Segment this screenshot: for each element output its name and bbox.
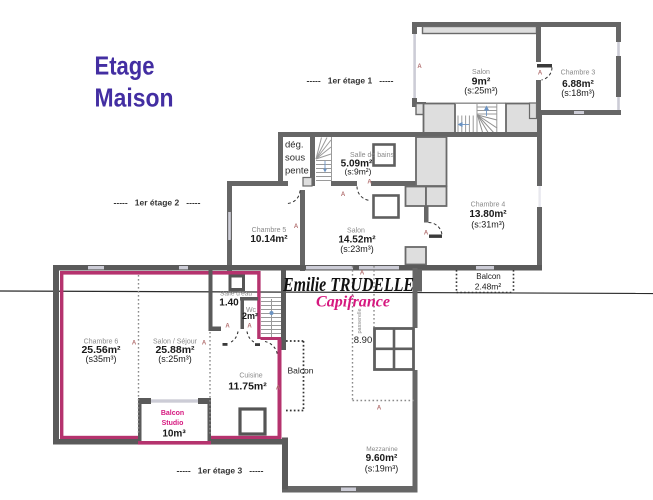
svg-text:A: A: [341, 192, 346, 198]
svg-text:8.90: 8.90: [354, 335, 373, 346]
svg-text:Chambre 5: Chambre 5: [252, 227, 287, 234]
svg-text:(s:19m³): (s:19m³): [365, 464, 399, 474]
svg-text:pente: pente: [285, 166, 309, 177]
svg-text:(s:9m²): (s:9m²): [345, 167, 372, 177]
svg-text:Chambre 3: Chambre 3: [561, 70, 596, 77]
svg-text:A: A: [276, 386, 281, 392]
svg-text:9.60m²: 9.60m²: [366, 453, 398, 464]
svg-text:(s:25m³): (s:25m³): [464, 86, 498, 96]
svg-text:1.40: 1.40: [219, 298, 239, 309]
svg-text:A: A: [247, 324, 252, 330]
svg-text:10.14m²: 10.14m²: [250, 234, 288, 245]
svg-text:A: A: [377, 406, 382, 412]
svg-text:----- 1er étage 2 -----: ----- 1er étage 2 -----: [114, 198, 201, 208]
svg-text:A: A: [538, 71, 543, 77]
svg-text:2.48m²: 2.48m²: [475, 282, 502, 292]
svg-text:----- 1er étage 3 -----: ----- 1er étage 3 -----: [177, 466, 264, 476]
svg-text:Etage: Etage: [95, 51, 155, 81]
svg-text:Balcon: Balcon: [476, 272, 500, 281]
svg-text:Studio: Studio: [162, 420, 184, 427]
svg-text:A: A: [424, 231, 429, 237]
svg-text:Cuisine: Cuisine: [239, 373, 262, 380]
svg-text:----- 1er étage 1 -----: ----- 1er étage 1 -----: [307, 76, 394, 86]
svg-text:Balcon: Balcon: [161, 410, 184, 417]
svg-text:A: A: [202, 341, 207, 347]
svg-text:13.80m²: 13.80m²: [469, 209, 507, 220]
svg-text:(s:31m³): (s:31m³): [471, 220, 505, 230]
svg-text:11.75m²: 11.75m²: [228, 381, 267, 393]
svg-text:A: A: [132, 341, 137, 347]
svg-text:10m³: 10m³: [162, 429, 186, 440]
svg-text:A: A: [367, 180, 372, 186]
svg-text:(s:25m³): (s:25m³): [158, 354, 192, 364]
svg-text:Chambre 4: Chambre 4: [471, 202, 506, 209]
svg-text:Salon: Salon: [347, 228, 365, 235]
svg-text:passerelle: passerelle: [357, 308, 363, 333]
svg-text:Salle d'eau: Salle d'eau: [220, 291, 252, 298]
svg-text:A: A: [294, 224, 299, 230]
svg-text:Capifrance: Capifrance: [316, 294, 390, 311]
svg-text:dég.: dég.: [285, 140, 304, 151]
svg-text:(s35m³): (s35m³): [86, 354, 117, 364]
svg-text:(s:23m³): (s:23m³): [340, 244, 374, 254]
svg-text:Maison: Maison: [95, 83, 174, 113]
svg-text:(s:18m³): (s:18m³): [561, 88, 595, 98]
svg-text:A: A: [360, 271, 365, 277]
svg-text:Balcon: Balcon: [288, 366, 314, 376]
svg-text:A: A: [225, 324, 230, 330]
svg-text:2m²: 2m²: [242, 311, 258, 321]
svg-text:A: A: [417, 64, 422, 70]
svg-text:sous: sous: [285, 153, 305, 164]
svg-text:Mezzanine: Mezzanine: [366, 446, 398, 453]
